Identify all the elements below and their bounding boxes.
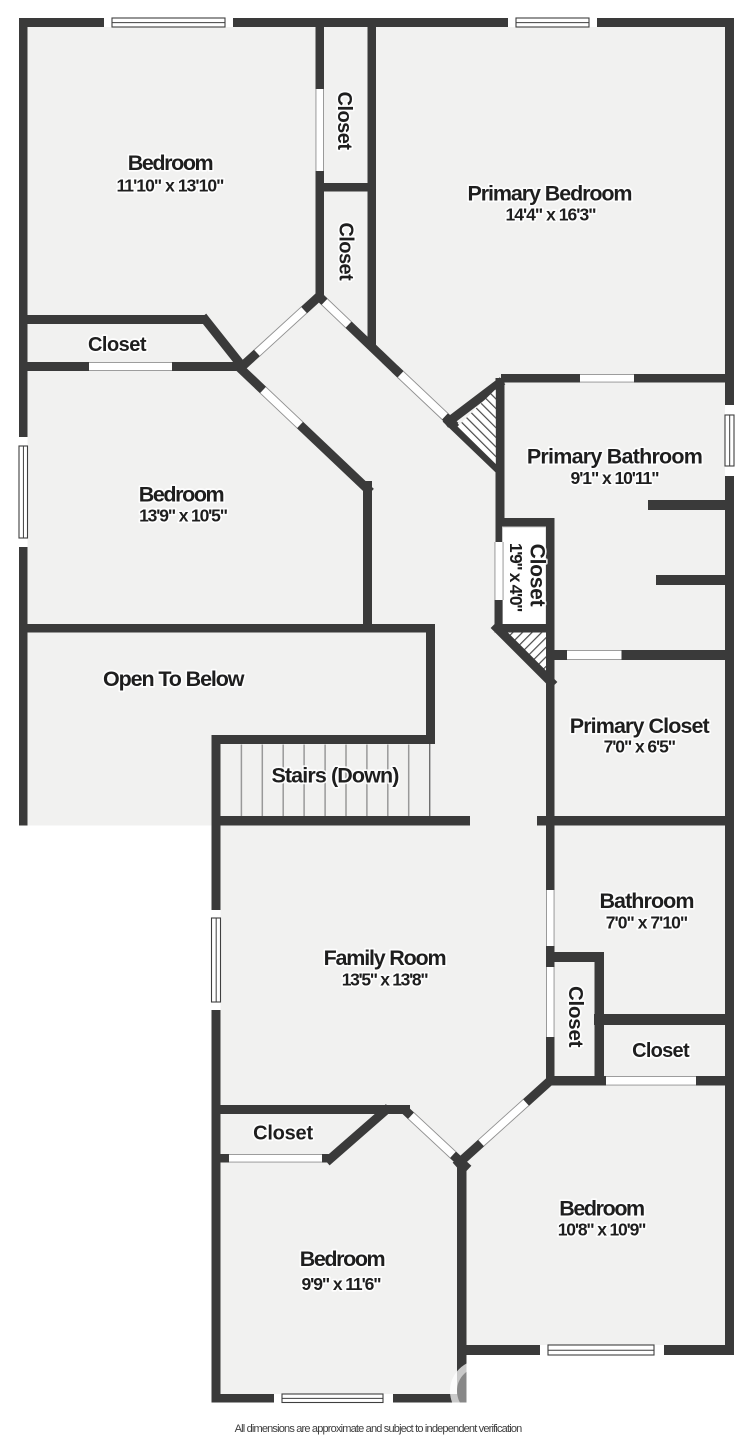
- svg-text:Closet: Closet: [253, 1123, 313, 1145]
- svg-text:9'1" x 10'11": 9'1" x 10'11": [571, 468, 660, 488]
- svg-text:Primary Bedroom: Primary Bedroom: [468, 182, 632, 206]
- svg-text:7'0" x 7'10": 7'0" x 7'10": [606, 913, 688, 933]
- svg-text:1'9" x 4'0": 1'9" x 4'0": [506, 543, 526, 612]
- svg-text:Bathroom: Bathroom: [599, 889, 693, 913]
- svg-text:Closet: Closet: [632, 1040, 690, 1062]
- svg-text:Bedroom: Bedroom: [128, 151, 213, 175]
- svg-text:Bedroom: Bedroom: [139, 483, 224, 507]
- svg-text:7'0" x 6'5": 7'0" x 6'5": [604, 737, 676, 757]
- svg-text:Closet: Closet: [333, 92, 355, 151]
- svg-text:Bedroom: Bedroom: [300, 1247, 385, 1271]
- svg-text:Closet: Closet: [564, 986, 587, 1048]
- svg-text:Primary Bathroom: Primary Bathroom: [527, 445, 702, 469]
- svg-text:14'4" x 16'3": 14'4" x 16'3": [505, 205, 596, 225]
- svg-text:Closet: Closet: [525, 544, 548, 607]
- svg-text:Family Room: Family Room: [324, 946, 446, 970]
- svg-text:All dimensions are approximate: All dimensions are approximate and subje…: [235, 1423, 523, 1435]
- svg-text:Bedroom: Bedroom: [559, 1197, 644, 1221]
- svg-text:Stairs (Down): Stairs (Down): [271, 764, 399, 788]
- svg-text:11'10" x 13'10": 11'10" x 13'10": [116, 176, 224, 196]
- svg-text:Open To Below: Open To Below: [103, 667, 245, 691]
- svg-text:10'8" x 10'9": 10'8" x 10'9": [558, 1220, 646, 1240]
- svg-text:Closet: Closet: [88, 334, 147, 356]
- svg-text:Closet: Closet: [334, 222, 356, 281]
- svg-text:Primary Closet: Primary Closet: [570, 714, 710, 738]
- svg-text:9'9" x 11'6": 9'9" x 11'6": [302, 1274, 382, 1294]
- svg-text:13'9" x 10'5": 13'9" x 10'5": [139, 506, 228, 526]
- svg-text:13'5" x 13'8": 13'5" x 13'8": [342, 970, 429, 990]
